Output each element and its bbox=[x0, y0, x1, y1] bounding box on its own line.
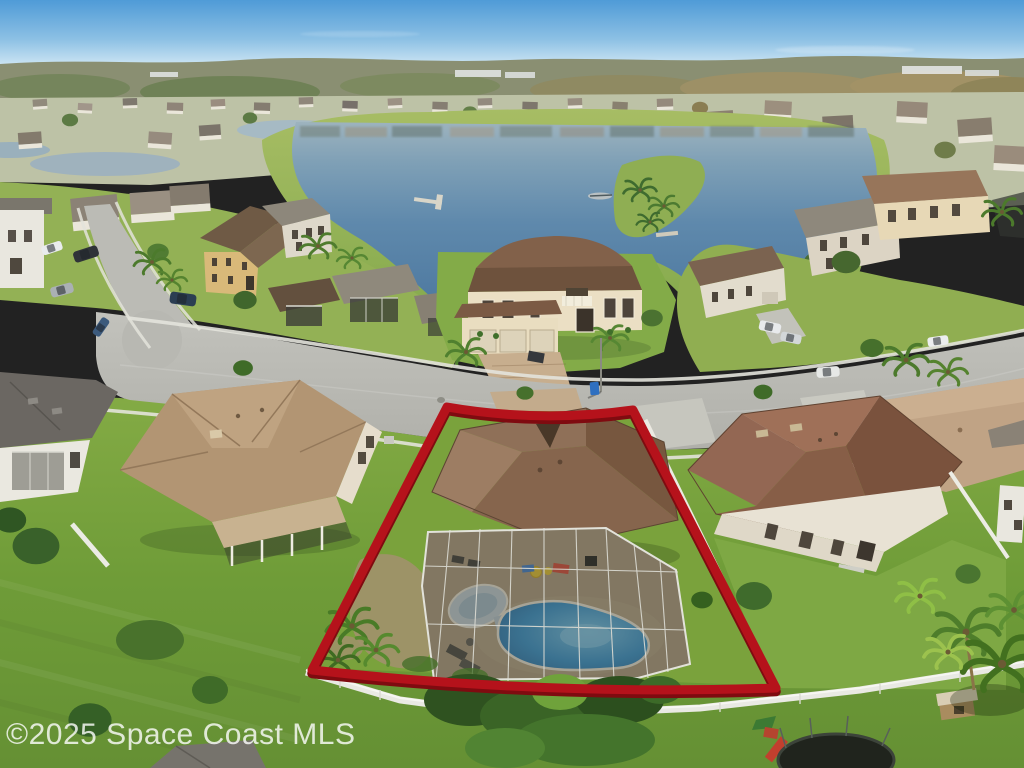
garage-door bbox=[530, 330, 554, 352]
mediterranean-house bbox=[436, 236, 676, 396]
ac-unit bbox=[384, 436, 394, 444]
mls-watermark: ©2025 Space Coast MLS bbox=[6, 718, 355, 752]
blue-trash-bin bbox=[590, 382, 600, 396]
shore-reflections bbox=[300, 126, 854, 137]
screened-lanai bbox=[12, 452, 64, 490]
bush bbox=[116, 620, 184, 660]
cloud bbox=[300, 31, 420, 37]
entry-door bbox=[576, 308, 594, 332]
garage-door bbox=[500, 330, 526, 352]
aerial-photo-canvas bbox=[0, 0, 1024, 768]
manhole bbox=[437, 397, 445, 403]
aerial-photo: ©2025 Space Coast MLS bbox=[0, 0, 1024, 768]
house-wall bbox=[0, 210, 44, 288]
cloud bbox=[775, 46, 915, 54]
distant-pond bbox=[30, 152, 180, 176]
beige-lakefront-house bbox=[862, 170, 990, 240]
